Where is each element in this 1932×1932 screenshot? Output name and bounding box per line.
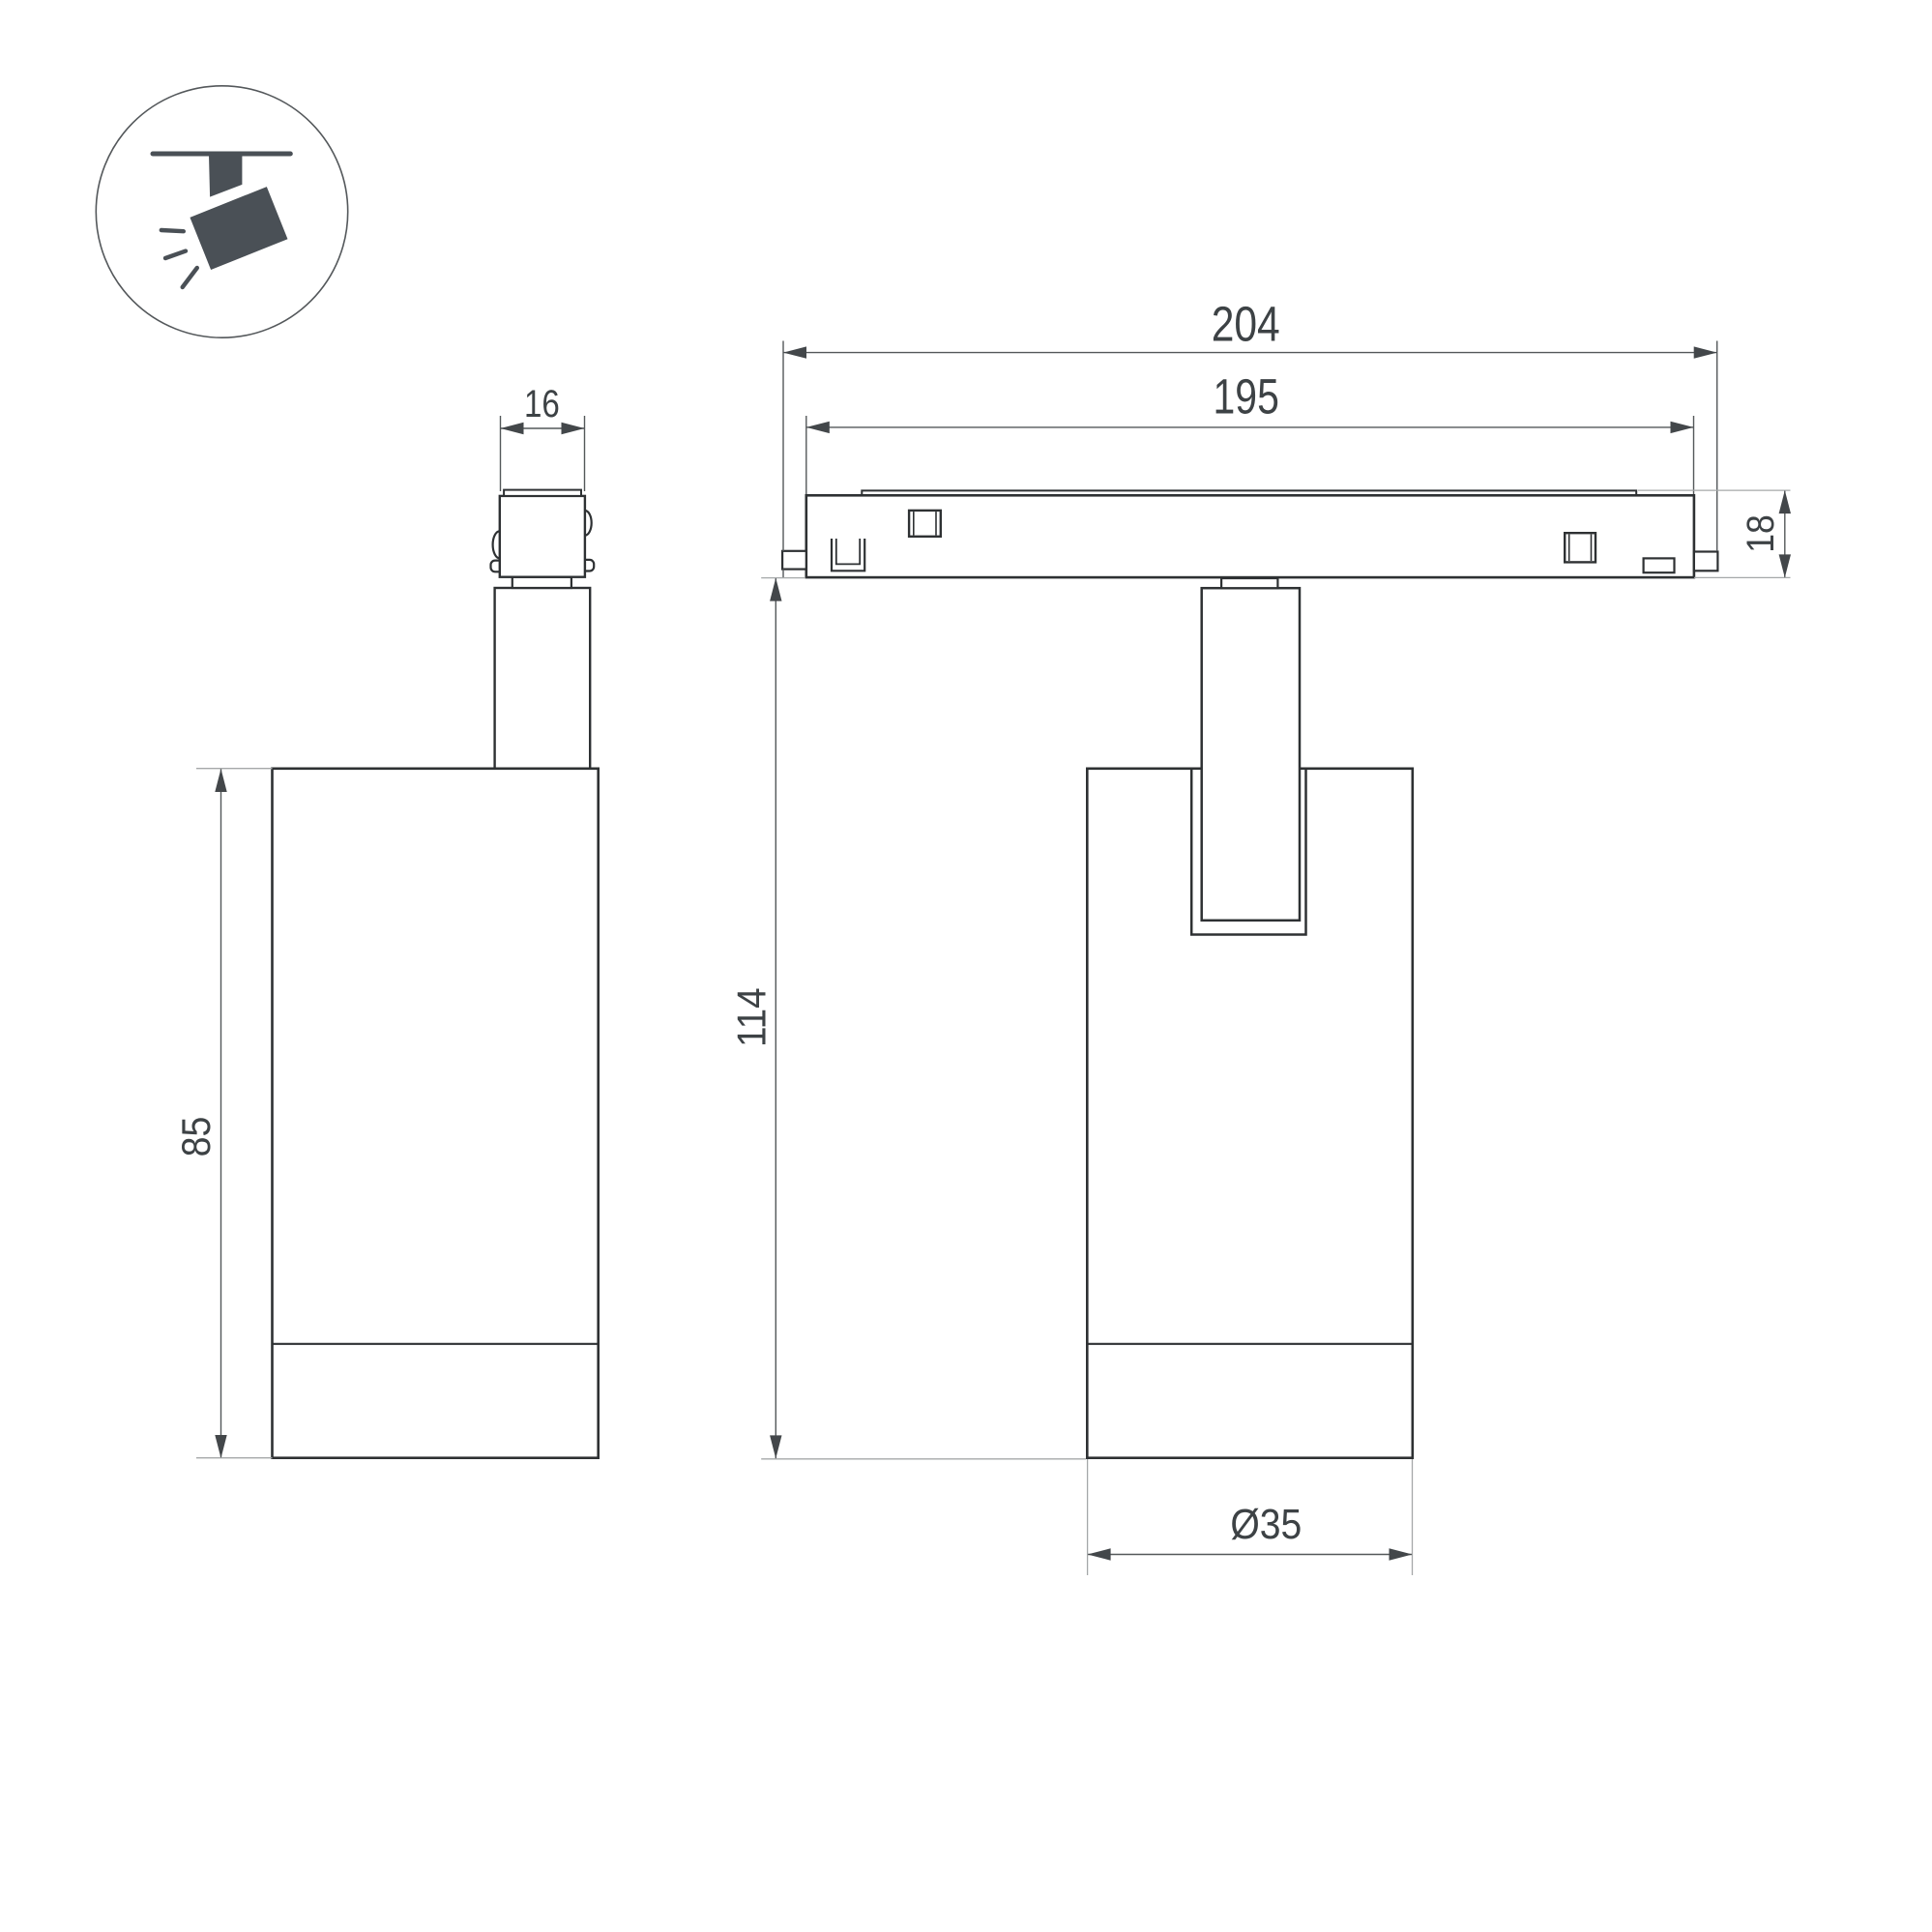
svg-text:114: 114 <box>728 987 774 1047</box>
svg-text:195: 195 <box>1214 369 1279 424</box>
svg-text:85: 85 <box>173 1117 219 1157</box>
svg-text:18: 18 <box>1739 514 1782 553</box>
svg-text:204: 204 <box>1212 297 1280 352</box>
svg-text:Ø35: Ø35 <box>1230 1501 1302 1548</box>
svg-text:16: 16 <box>524 383 560 425</box>
